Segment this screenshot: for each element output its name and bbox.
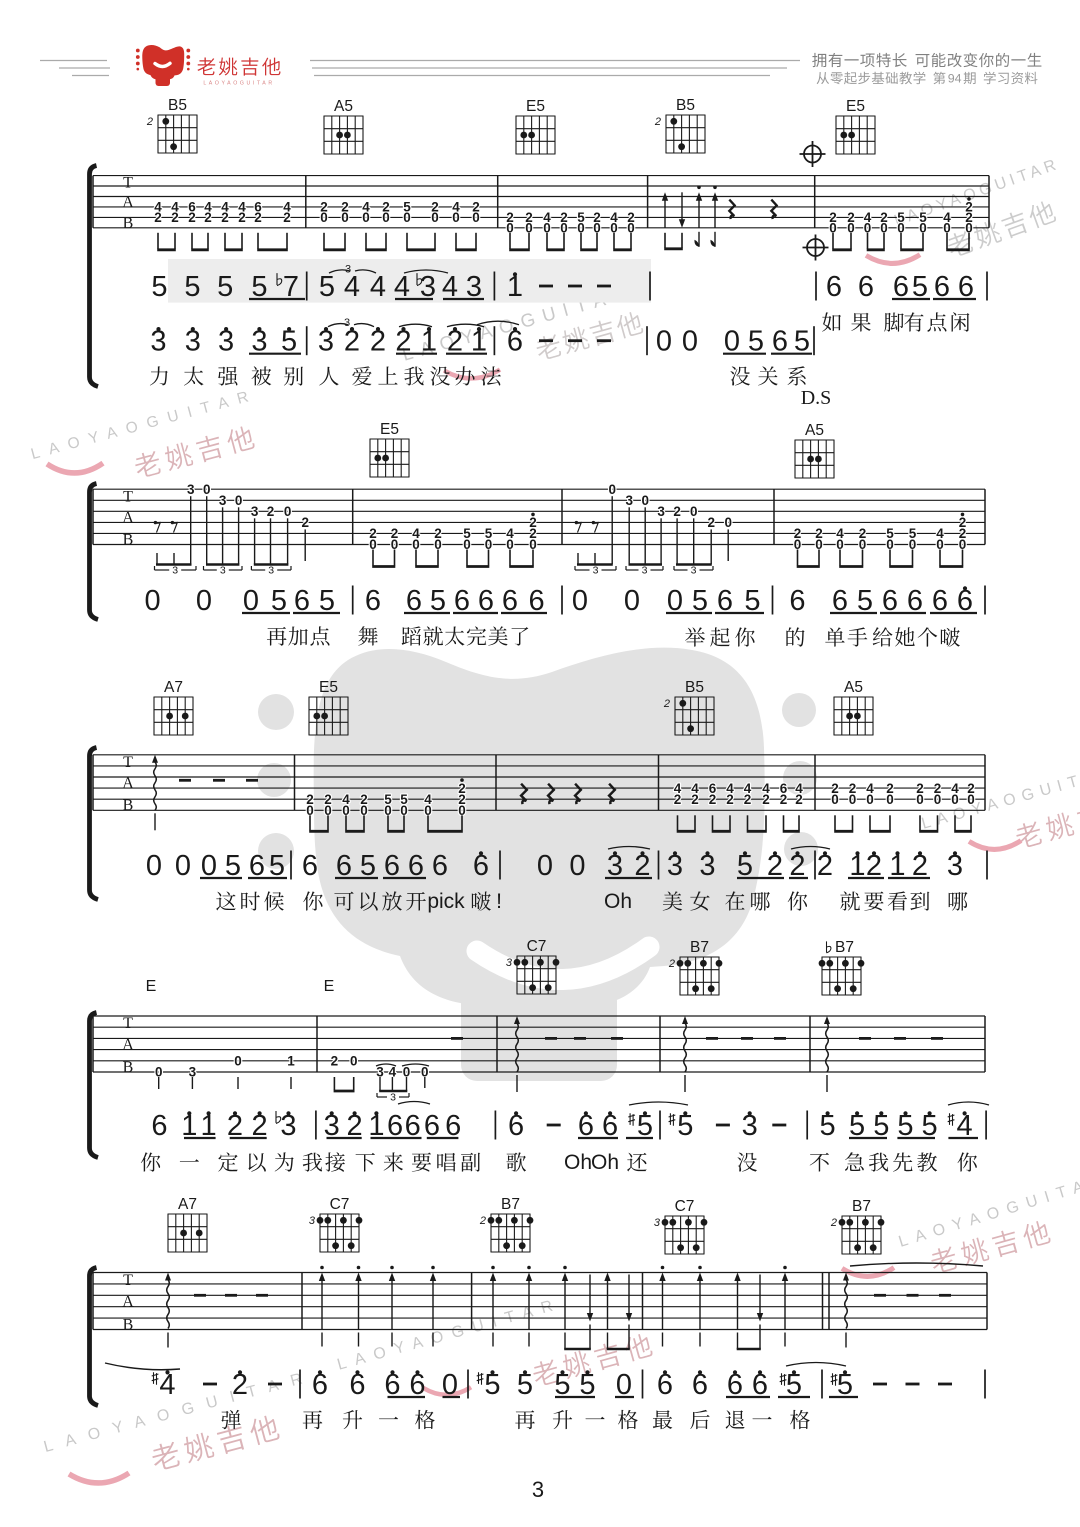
svg-text:0: 0	[234, 1054, 242, 1069]
svg-text:2: 2	[744, 792, 752, 807]
svg-text:2: 2	[171, 210, 179, 225]
svg-text:2: 2	[668, 958, 675, 970]
svg-text:0: 0	[682, 326, 698, 358]
svg-text:C7: C7	[675, 1198, 695, 1215]
svg-text:A5: A5	[334, 98, 353, 115]
svg-text:A: A	[122, 194, 134, 211]
svg-text:D.S: D.S	[801, 387, 832, 409]
svg-text:0: 0	[690, 504, 698, 519]
svg-text:6: 6	[858, 271, 874, 303]
svg-text:6: 6	[151, 1110, 167, 1142]
svg-text:B5: B5	[168, 97, 187, 114]
svg-text:3: 3	[172, 565, 178, 577]
svg-text:0: 0	[967, 792, 975, 807]
svg-text:0: 0	[724, 515, 732, 530]
svg-text:5: 5	[151, 271, 167, 303]
svg-text:0: 0	[472, 210, 480, 225]
svg-text:3: 3	[532, 1477, 544, 1502]
svg-text:E: E	[146, 978, 157, 995]
svg-text:0: 0	[235, 493, 243, 508]
svg-text:2: 2	[663, 698, 670, 710]
svg-text:2: 2	[458, 781, 466, 796]
svg-text:2: 2	[529, 515, 537, 530]
svg-text:0: 0	[831, 792, 839, 807]
svg-text:0: 0	[145, 585, 161, 617]
svg-text:A: A	[122, 509, 134, 526]
svg-text:0: 0	[569, 850, 585, 882]
svg-text:A: A	[122, 1037, 134, 1054]
svg-text:2: 2	[267, 504, 275, 519]
svg-text:A7: A7	[178, 1196, 197, 1213]
svg-text:0: 0	[431, 210, 439, 225]
svg-text:B: B	[123, 215, 134, 232]
svg-text:A: A	[122, 1294, 134, 1311]
svg-text:LAOYAOGUITAR: LAOYAOGUITAR	[203, 81, 274, 87]
svg-text:2: 2	[673, 504, 681, 519]
svg-text:0: 0	[362, 210, 370, 225]
svg-text:0: 0	[203, 482, 211, 497]
svg-text:B: B	[123, 1059, 134, 1076]
svg-text:B7: B7	[690, 939, 709, 956]
svg-text:!: !	[496, 890, 502, 913]
svg-text:3: 3	[309, 1215, 316, 1227]
svg-text:C7: C7	[527, 938, 547, 955]
svg-text:Oh: Oh	[564, 1151, 592, 1174]
svg-text:T: T	[123, 488, 133, 505]
svg-text:A5: A5	[844, 679, 863, 696]
svg-text:2: 2	[780, 792, 788, 807]
svg-text:T: T	[123, 1272, 133, 1289]
svg-text:6: 6	[302, 850, 318, 882]
svg-text:3: 3	[654, 1217, 661, 1229]
svg-text:E5: E5	[846, 98, 865, 115]
svg-text:A7: A7	[164, 679, 183, 696]
svg-text:0: 0	[196, 585, 212, 617]
svg-text:B7: B7	[852, 1198, 871, 1215]
svg-text:4: 4	[344, 271, 360, 303]
svg-text:0: 0	[951, 792, 959, 807]
svg-text:2: 2	[283, 210, 291, 225]
svg-text:0: 0	[382, 210, 390, 225]
svg-text:2: 2	[331, 1054, 339, 1069]
svg-text:2: 2	[301, 515, 309, 530]
svg-text:E5: E5	[380, 421, 399, 438]
svg-text:2: 2	[479, 1215, 486, 1227]
svg-text:0: 0	[572, 585, 588, 617]
svg-text:B: B	[123, 1316, 134, 1333]
svg-text:0: 0	[341, 210, 349, 225]
svg-text:B7: B7	[501, 1196, 520, 1213]
svg-text:B: B	[123, 797, 134, 814]
svg-text:2: 2	[762, 792, 770, 807]
svg-text:E5: E5	[319, 679, 338, 696]
svg-text:2: 2	[654, 116, 661, 128]
svg-text:2: 2	[204, 210, 212, 225]
svg-text:2: 2	[959, 515, 967, 530]
svg-text:2: 2	[674, 792, 682, 807]
svg-text:3: 3	[657, 504, 665, 519]
svg-text:3: 3	[187, 482, 195, 497]
svg-text:0: 0	[146, 850, 162, 882]
svg-text:2: 2	[238, 210, 246, 225]
svg-text:3: 3	[344, 317, 350, 329]
svg-text:0: 0	[403, 210, 411, 225]
svg-text:6: 6	[432, 850, 448, 882]
svg-text:T: T	[123, 754, 133, 771]
svg-text:0: 0	[350, 1054, 358, 1069]
svg-text:0: 0	[849, 792, 857, 807]
svg-text:1: 1	[287, 1054, 295, 1069]
svg-text:2: 2	[726, 792, 734, 807]
svg-text:2: 2	[221, 210, 229, 225]
svg-text:B5: B5	[676, 97, 695, 114]
svg-text:B7: B7	[835, 939, 854, 956]
svg-text:B: B	[123, 532, 134, 549]
svg-text:94: 94	[948, 72, 962, 86]
svg-text:2: 2	[146, 116, 153, 128]
svg-text:3: 3	[345, 264, 351, 276]
svg-text:C7: C7	[330, 1196, 350, 1213]
svg-text:pick: pick	[427, 890, 465, 913]
svg-text:3: 3	[219, 493, 227, 508]
svg-text:0: 0	[537, 850, 553, 882]
svg-text:0: 0	[916, 792, 924, 807]
svg-text:B5: B5	[685, 679, 704, 696]
svg-text:E: E	[324, 978, 335, 995]
svg-text:3: 3	[642, 565, 648, 577]
svg-text:6: 6	[365, 585, 381, 617]
svg-text:0: 0	[452, 210, 460, 225]
svg-text:Oh: Oh	[604, 890, 632, 913]
svg-text:3: 3	[390, 1092, 396, 1104]
svg-text:0: 0	[656, 326, 672, 358]
svg-text:0: 0	[886, 792, 894, 807]
svg-text:5: 5	[217, 271, 233, 303]
svg-text:3: 3	[593, 565, 599, 577]
svg-text:0: 0	[175, 850, 191, 882]
svg-text:5: 5	[184, 271, 200, 303]
svg-text:2: 2	[254, 210, 262, 225]
svg-text:2: 2	[691, 792, 699, 807]
svg-text:6: 6	[826, 271, 842, 303]
svg-text:3: 3	[691, 565, 697, 577]
svg-text:Oh: Oh	[591, 1151, 619, 1174]
svg-text:0: 0	[641, 493, 649, 508]
svg-text:A: A	[122, 775, 134, 792]
svg-text:2: 2	[709, 792, 717, 807]
svg-text:T: T	[123, 174, 133, 191]
svg-text:2: 2	[707, 515, 715, 530]
svg-text:0: 0	[866, 792, 874, 807]
svg-text:2: 2	[154, 210, 162, 225]
svg-text:0: 0	[624, 585, 640, 617]
svg-text:E5: E5	[526, 98, 545, 115]
svg-text:0: 0	[608, 482, 616, 497]
svg-text:3: 3	[251, 504, 259, 519]
svg-text:0: 0	[934, 792, 942, 807]
svg-text:A5: A5	[805, 422, 824, 439]
svg-text:2: 2	[965, 200, 973, 215]
svg-text:5: 5	[319, 271, 335, 303]
svg-text:4: 4	[370, 271, 386, 303]
svg-text:0: 0	[284, 504, 292, 519]
svg-text:3: 3	[625, 493, 633, 508]
svg-text:2: 2	[795, 792, 803, 807]
svg-text:6: 6	[789, 585, 805, 617]
svg-text:T: T	[123, 1015, 133, 1032]
svg-text:0: 0	[320, 210, 328, 225]
svg-text:2: 2	[830, 1217, 837, 1229]
svg-text:3: 3	[268, 565, 274, 577]
svg-text:2: 2	[188, 210, 196, 225]
svg-text:3: 3	[220, 565, 226, 577]
svg-text:3: 3	[506, 957, 513, 969]
